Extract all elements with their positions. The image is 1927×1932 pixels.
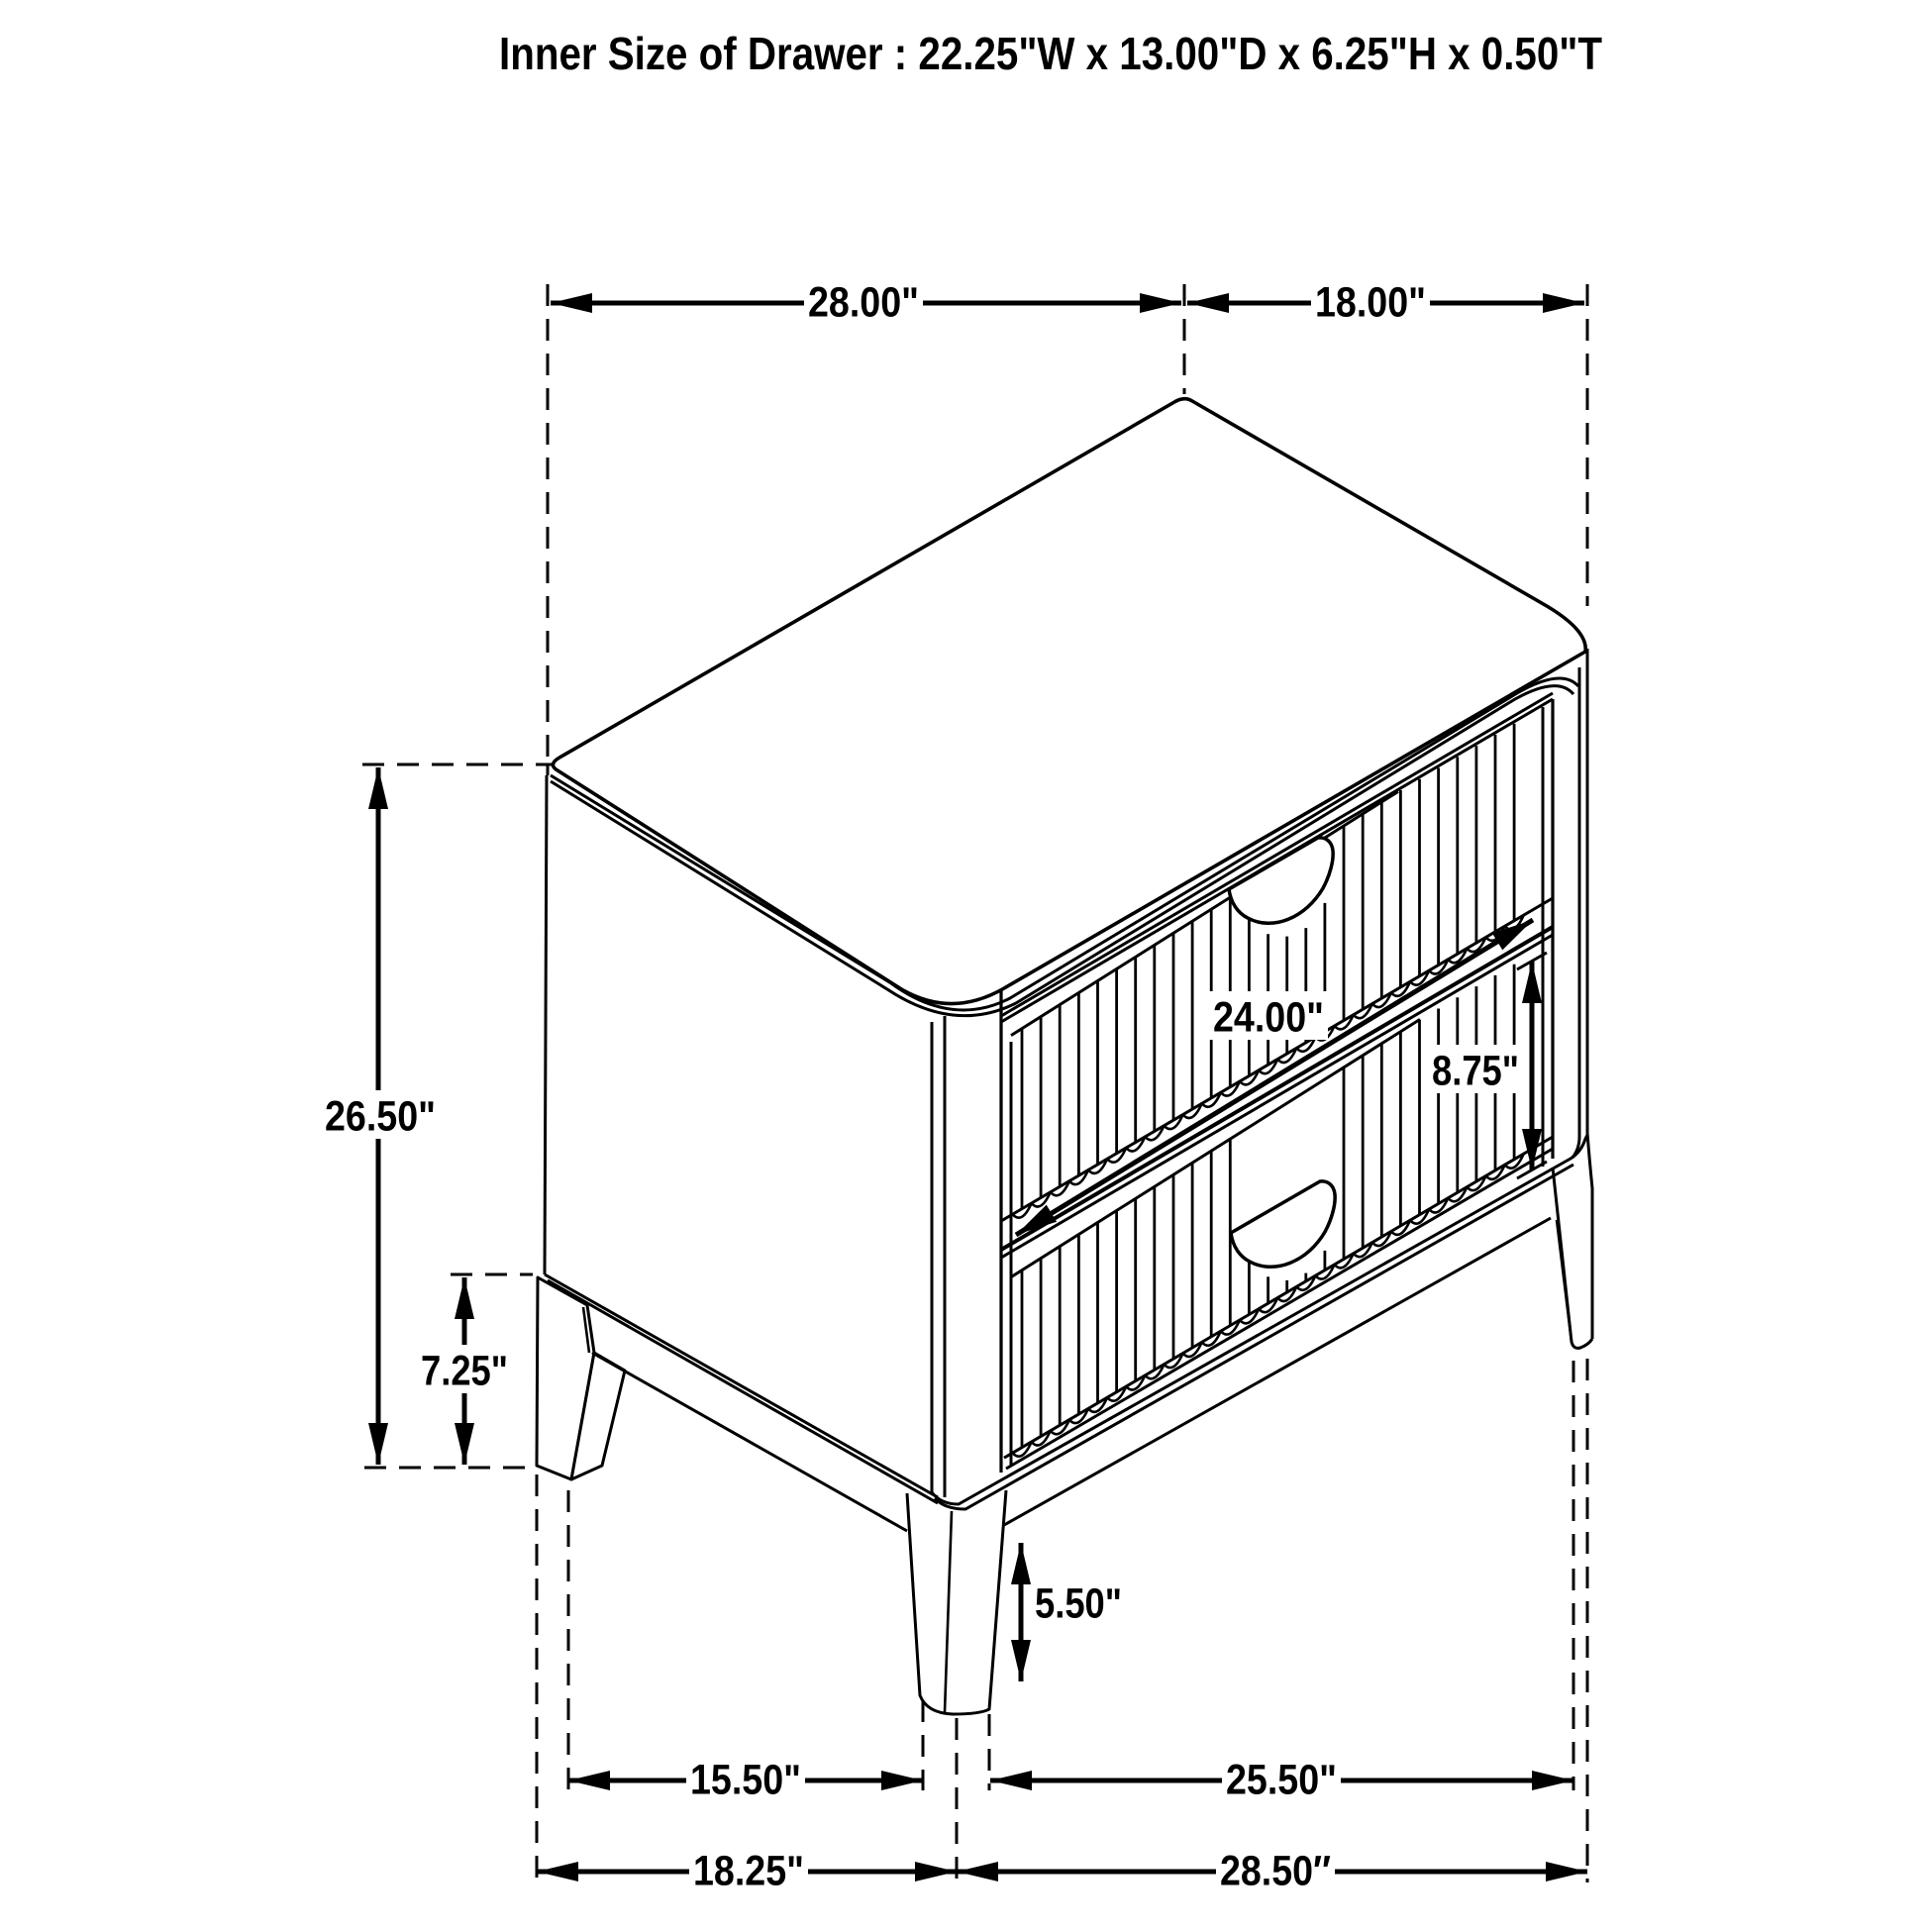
svg-text:25.50": 25.50" (1226, 1756, 1337, 1803)
svg-text:18.25": 18.25" (693, 1847, 804, 1894)
svg-text:8.75": 8.75" (1432, 1047, 1519, 1094)
svg-text:28.50″: 28.50″ (1220, 1847, 1331, 1894)
svg-text:26.50": 26.50" (325, 1092, 436, 1140)
svg-text:15.50": 15.50" (690, 1756, 801, 1803)
svg-text:28.00": 28.00" (808, 278, 919, 326)
svg-text:24.00": 24.00" (1213, 993, 1324, 1041)
svg-text:18.00": 18.00" (1315, 278, 1426, 326)
svg-text:7.25": 7.25" (421, 1347, 508, 1394)
svg-text:5.50": 5.50" (1035, 1579, 1122, 1627)
svg-text:Inner Size of Drawer : 22.25"W: Inner Size of Drawer : 22.25"W x 13.00"D… (499, 28, 1602, 79)
